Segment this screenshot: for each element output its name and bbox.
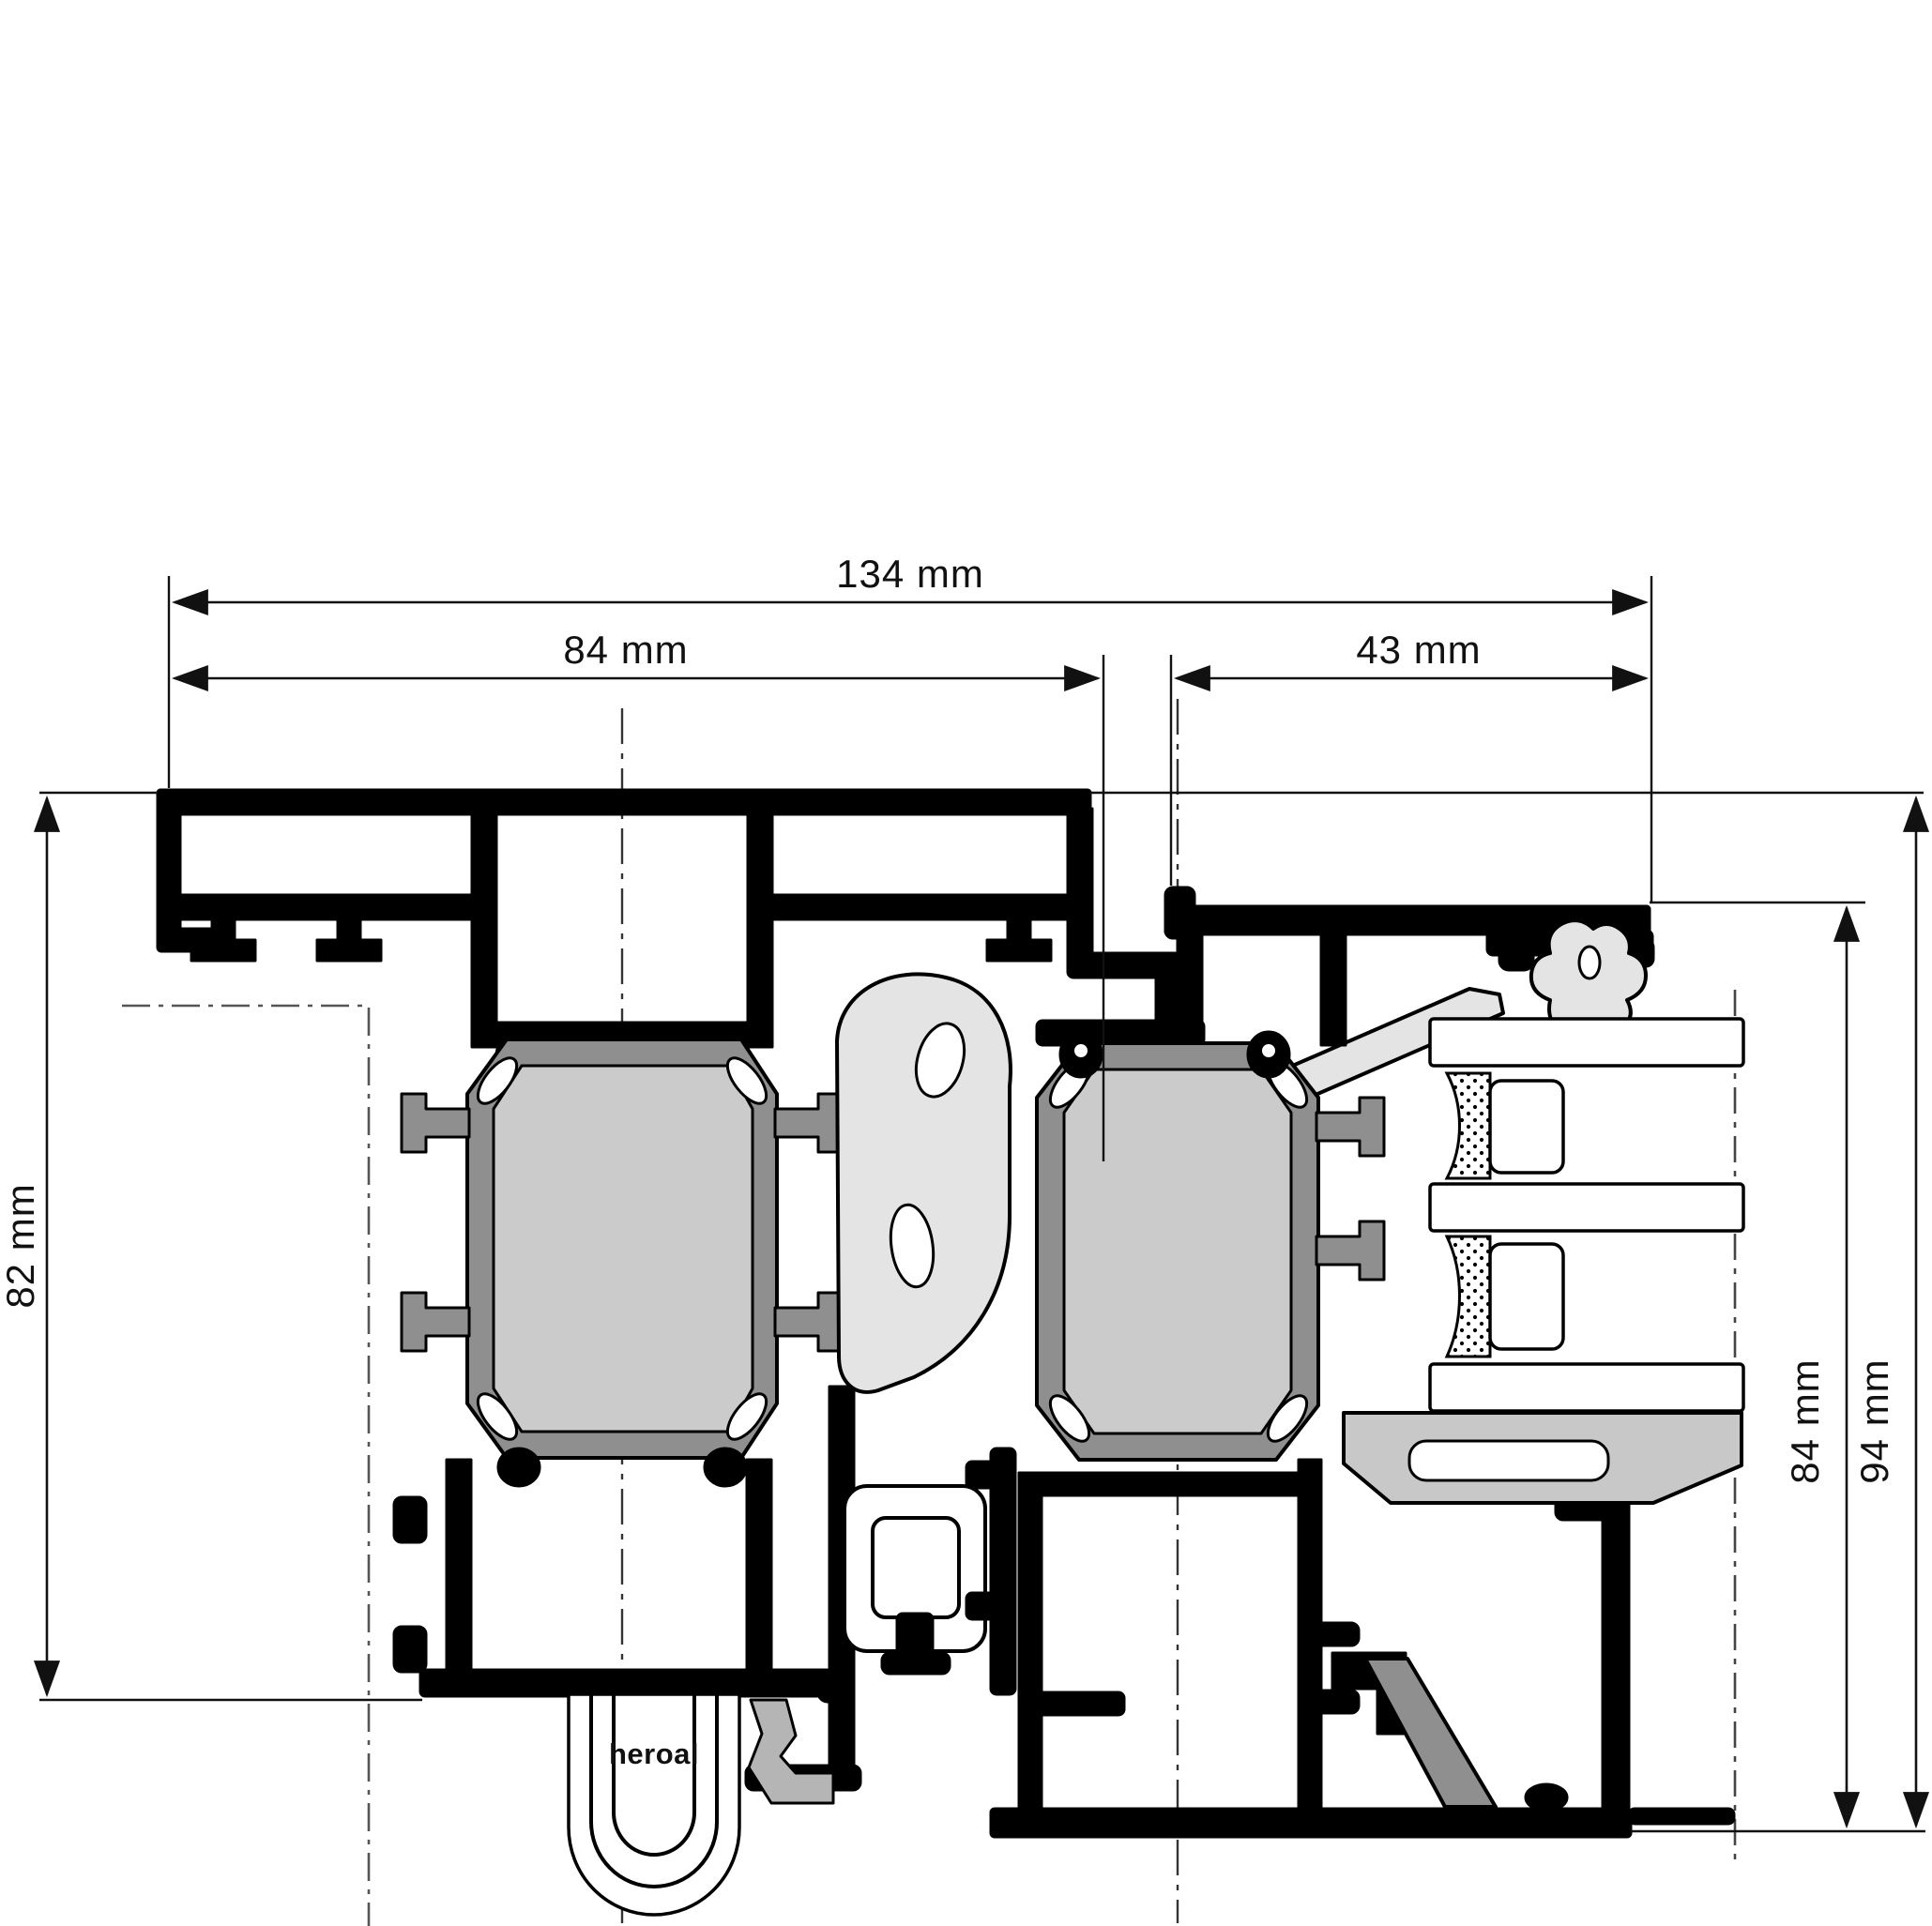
sash-right-wall bbox=[1603, 1480, 1629, 1829]
roller-pin-cap bbox=[882, 1653, 950, 1674]
center-gasket-body bbox=[837, 974, 1011, 1391]
frame-insulation-hook-left-1 bbox=[402, 1094, 469, 1152]
sash-bottom-step-bar bbox=[1019, 1692, 1124, 1715]
frame-hook-2 bbox=[317, 919, 381, 961]
glass-pane-3 bbox=[1430, 1364, 1743, 1411]
sash-inner-bar-2 bbox=[1299, 1691, 1359, 1713]
frame-hook-1 bbox=[191, 919, 255, 961]
sash-inner-bar-1 bbox=[1299, 1623, 1359, 1645]
dim-total-height: 94 mm bbox=[1852, 798, 1916, 1826]
glazing-unit bbox=[1344, 1019, 1743, 1503]
glazing-top-gasket-hole bbox=[1579, 947, 1600, 978]
frame-hook-3 bbox=[987, 919, 1051, 961]
frame-bottom-plate bbox=[420, 1670, 831, 1696]
frame-bottom-hook-2 bbox=[394, 1627, 426, 1672]
heroal-logo: heroal bbox=[609, 1737, 699, 1770]
dim-sash-height-label: 84 mm bbox=[1783, 1358, 1827, 1483]
frame-insulation-hook-left-2 bbox=[402, 1293, 469, 1351]
frame-profile bbox=[158, 790, 1186, 1081]
dim-frame-width: 84 mm bbox=[175, 628, 1098, 678]
frame-left-wall bbox=[158, 790, 180, 951]
dim-frame-height-label: 82 mm bbox=[0, 1183, 42, 1308]
frame-seal-bottom-right bbox=[705, 1448, 746, 1486]
sash-seal-left-hole bbox=[1074, 1044, 1088, 1057]
glass-spacer-2 bbox=[1490, 1244, 1563, 1349]
frame-insulation-core bbox=[494, 1066, 753, 1432]
profile-section-drawing: heroal bbox=[0, 0, 1932, 1926]
wall-contour-line bbox=[122, 1006, 369, 1926]
frame-seal-bottom-left bbox=[498, 1448, 540, 1486]
keeper-clip-1 bbox=[966, 1462, 995, 1488]
sash-insulation-core bbox=[1064, 1069, 1291, 1433]
dim-sash-width-label: 43 mm bbox=[1356, 628, 1481, 672]
gasket-outer-shell bbox=[569, 1694, 739, 1915]
frame-bottom-left-wall bbox=[447, 1460, 471, 1676]
dim-total-width-label: 134 mm bbox=[836, 552, 984, 596]
frame-top-plate bbox=[158, 790, 1090, 814]
glazing-gasket-clamp-left bbox=[1499, 940, 1533, 970]
heroal-gasket: heroal bbox=[569, 1694, 833, 1915]
dim-total-height-label: 94 mm bbox=[1852, 1358, 1896, 1483]
dim-sash-height: 84 mm bbox=[1783, 908, 1847, 1826]
sash-bottom-top-bar bbox=[1019, 1473, 1302, 1495]
dim-sash-width: 43 mm bbox=[1177, 628, 1646, 678]
sash-insulation-hook-right-2 bbox=[1316, 1221, 1384, 1280]
edge-sealant-2 bbox=[1447, 1236, 1490, 1357]
sash-insulation-hook-right-1 bbox=[1316, 1098, 1384, 1156]
frame-insulation-zone bbox=[402, 1039, 843, 1458]
sash-bottom-lip bbox=[1629, 1809, 1734, 1824]
sash-neck-right-wall bbox=[1321, 934, 1346, 1045]
frame-bottom-hook-1 bbox=[394, 1497, 426, 1542]
sash-bottom-left-wall bbox=[1019, 1473, 1042, 1816]
frame-insulation-hook-right-2 bbox=[775, 1293, 843, 1351]
side-gasket-hook bbox=[749, 1700, 833, 1803]
frame-bottom-right-wall bbox=[747, 1460, 771, 1676]
frame-chamber-floor-left bbox=[158, 895, 477, 919]
glazing-support-slot bbox=[1409, 1441, 1608, 1480]
roller-insert bbox=[873, 1518, 959, 1617]
frame-insulation-hook-right-1 bbox=[775, 1094, 843, 1152]
dim-frame-height: 82 mm bbox=[0, 798, 47, 1694]
edge-sealant-1 bbox=[1447, 1073, 1490, 1178]
dim-total-width: 134 mm bbox=[175, 552, 1646, 602]
frame-chamber-floor-right bbox=[769, 895, 1090, 919]
glass-pane-1 bbox=[1430, 1019, 1743, 1066]
glass-spacer-1 bbox=[1490, 1081, 1563, 1173]
frame-tower-right-wall bbox=[748, 807, 772, 1041]
sash-seal-right-hole bbox=[1262, 1044, 1275, 1057]
frame-tower-left-wall bbox=[472, 807, 496, 1041]
sash-bottom-plate bbox=[991, 1809, 1631, 1837]
keeper-clip-2 bbox=[966, 1593, 995, 1619]
dim-frame-width-label: 84 mm bbox=[563, 628, 688, 672]
sash-drain-nub bbox=[1526, 1784, 1567, 1811]
glass-pane-2 bbox=[1430, 1184, 1743, 1231]
frame-rebate-wall bbox=[1068, 809, 1092, 959]
